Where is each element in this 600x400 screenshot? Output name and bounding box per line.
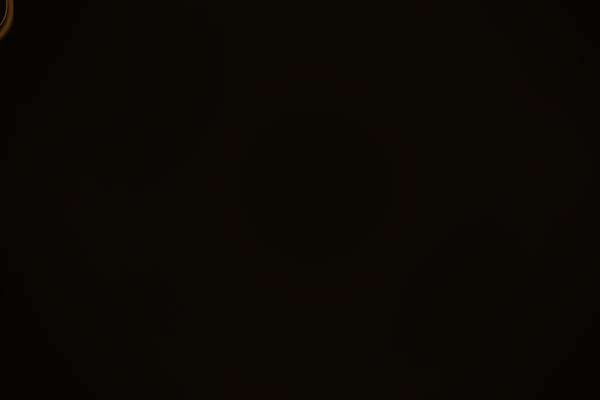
screenshot-root [0, 0, 600, 400]
vignette-layer [0, 0, 600, 400]
vignette-top-right [0, 0, 600, 400]
aerial-night-rendering [0, 0, 600, 400]
